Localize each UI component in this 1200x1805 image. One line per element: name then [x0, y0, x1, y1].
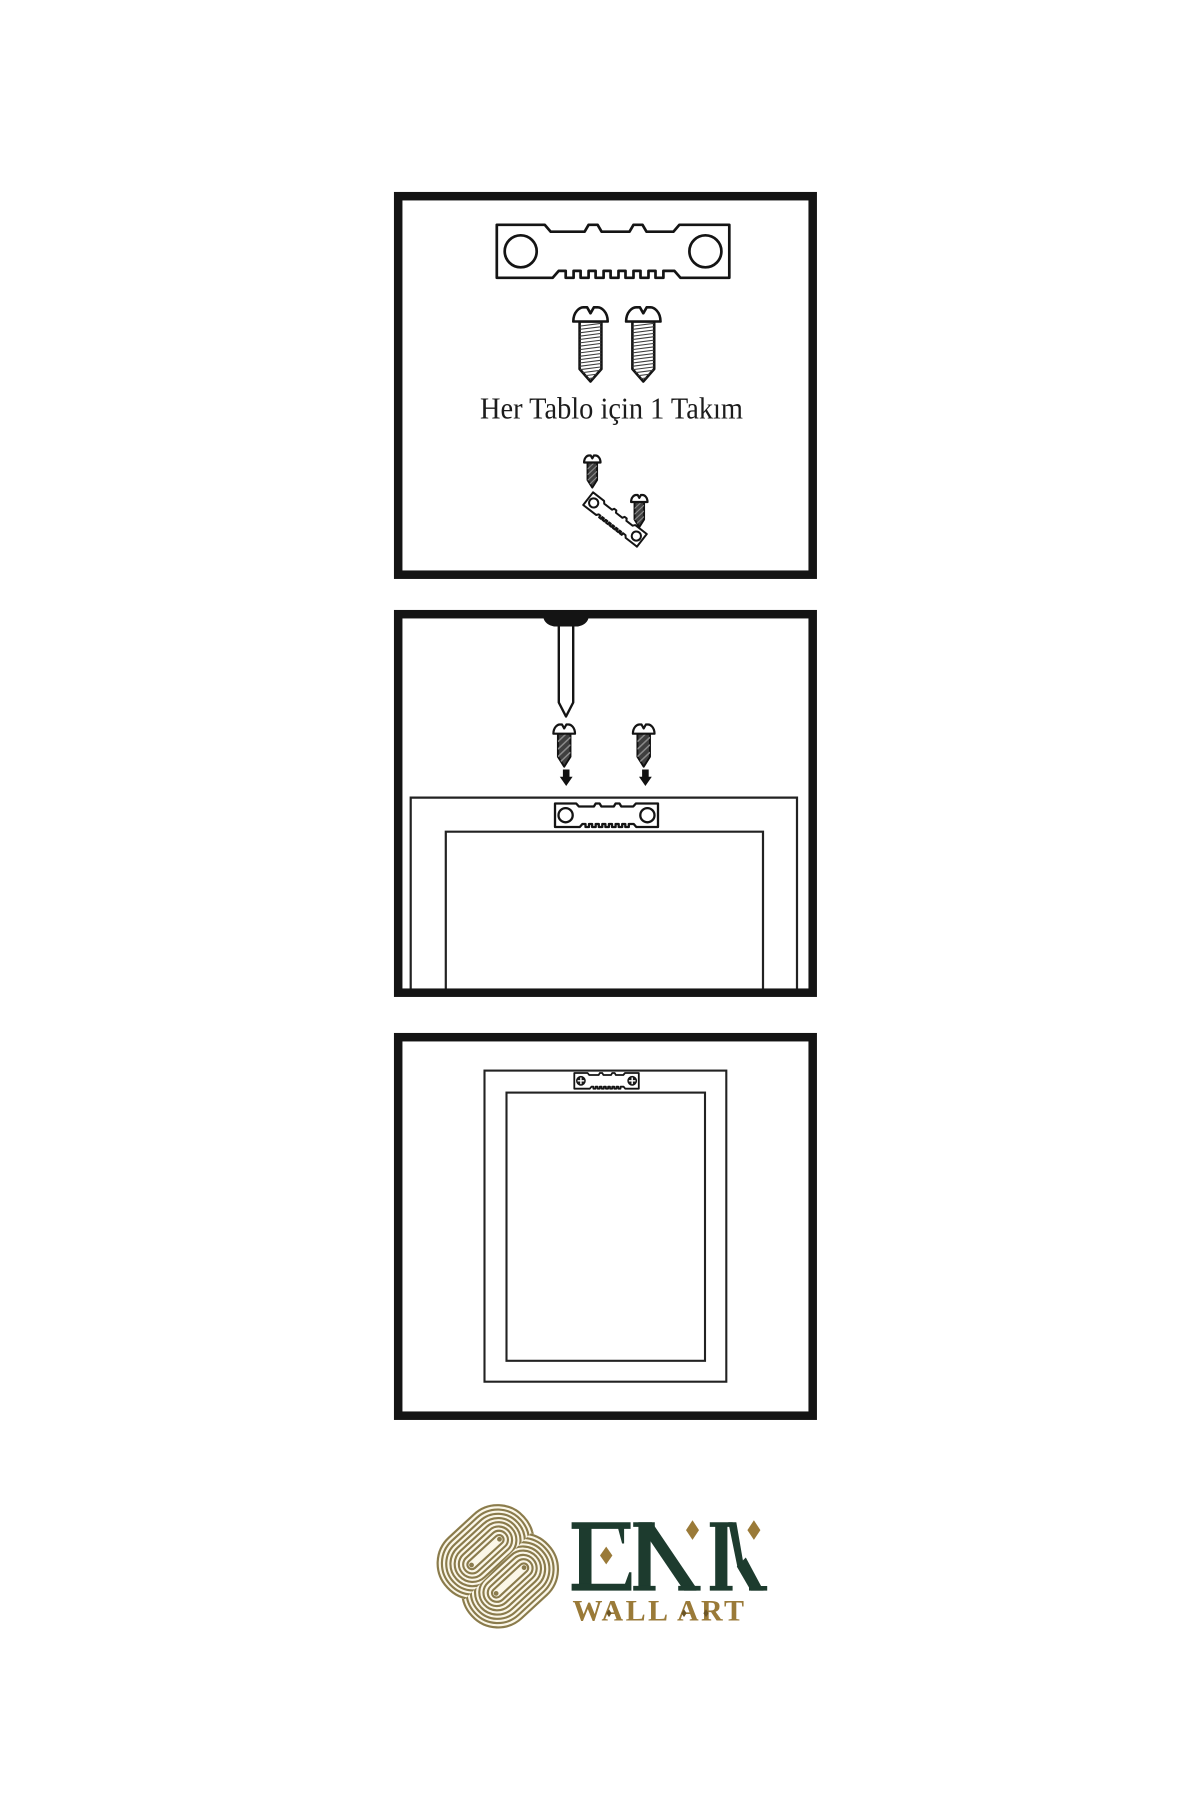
- svg-text:WALL ART: WALL ART: [573, 1595, 745, 1628]
- svg-text:Her Tablo için 1 Takım: Her Tablo için 1 Takım: [480, 391, 743, 426]
